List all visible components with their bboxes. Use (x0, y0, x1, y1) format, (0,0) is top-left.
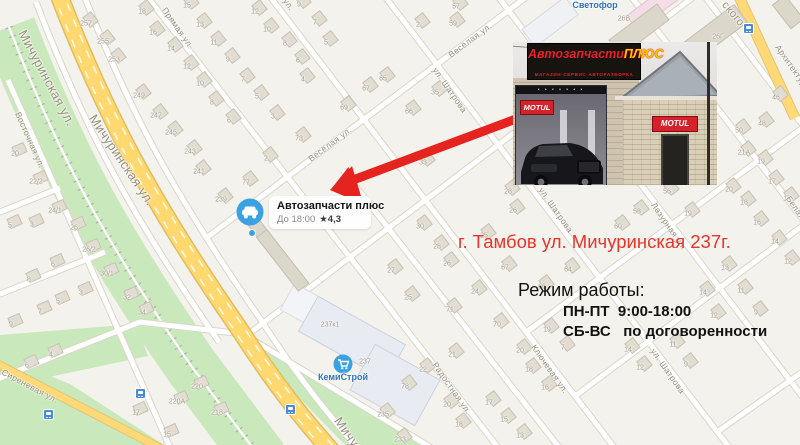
motul-logo: MOTUL (520, 100, 554, 115)
car-brand-logos: • • • • • • • (516, 86, 606, 94)
sign-name: Автозапчасти (528, 47, 624, 61)
gable-roof (615, 50, 717, 100)
motul-wall-sign: MOTUL (652, 116, 698, 132)
schedule-title: Режим работы: (518, 280, 645, 301)
shop-door (661, 134, 689, 185)
schedule-weekdays: ПН-ПТ 9:00-18:00 (563, 303, 691, 320)
address-annotation: г. Тамбов ул. Мичуринская 237г. (458, 231, 731, 253)
schedule-weekend: СБ-ВС по договоренности (563, 323, 767, 340)
motul-banner: • • • • • • • MOTUL (515, 85, 607, 185)
utility-pole (707, 42, 710, 185)
storefront-photo: АвтозапчастиПЛЮС МАГАЗИН·СЕРВИС·АВТОРАЗБ… (513, 42, 717, 185)
black-car (517, 134, 605, 185)
